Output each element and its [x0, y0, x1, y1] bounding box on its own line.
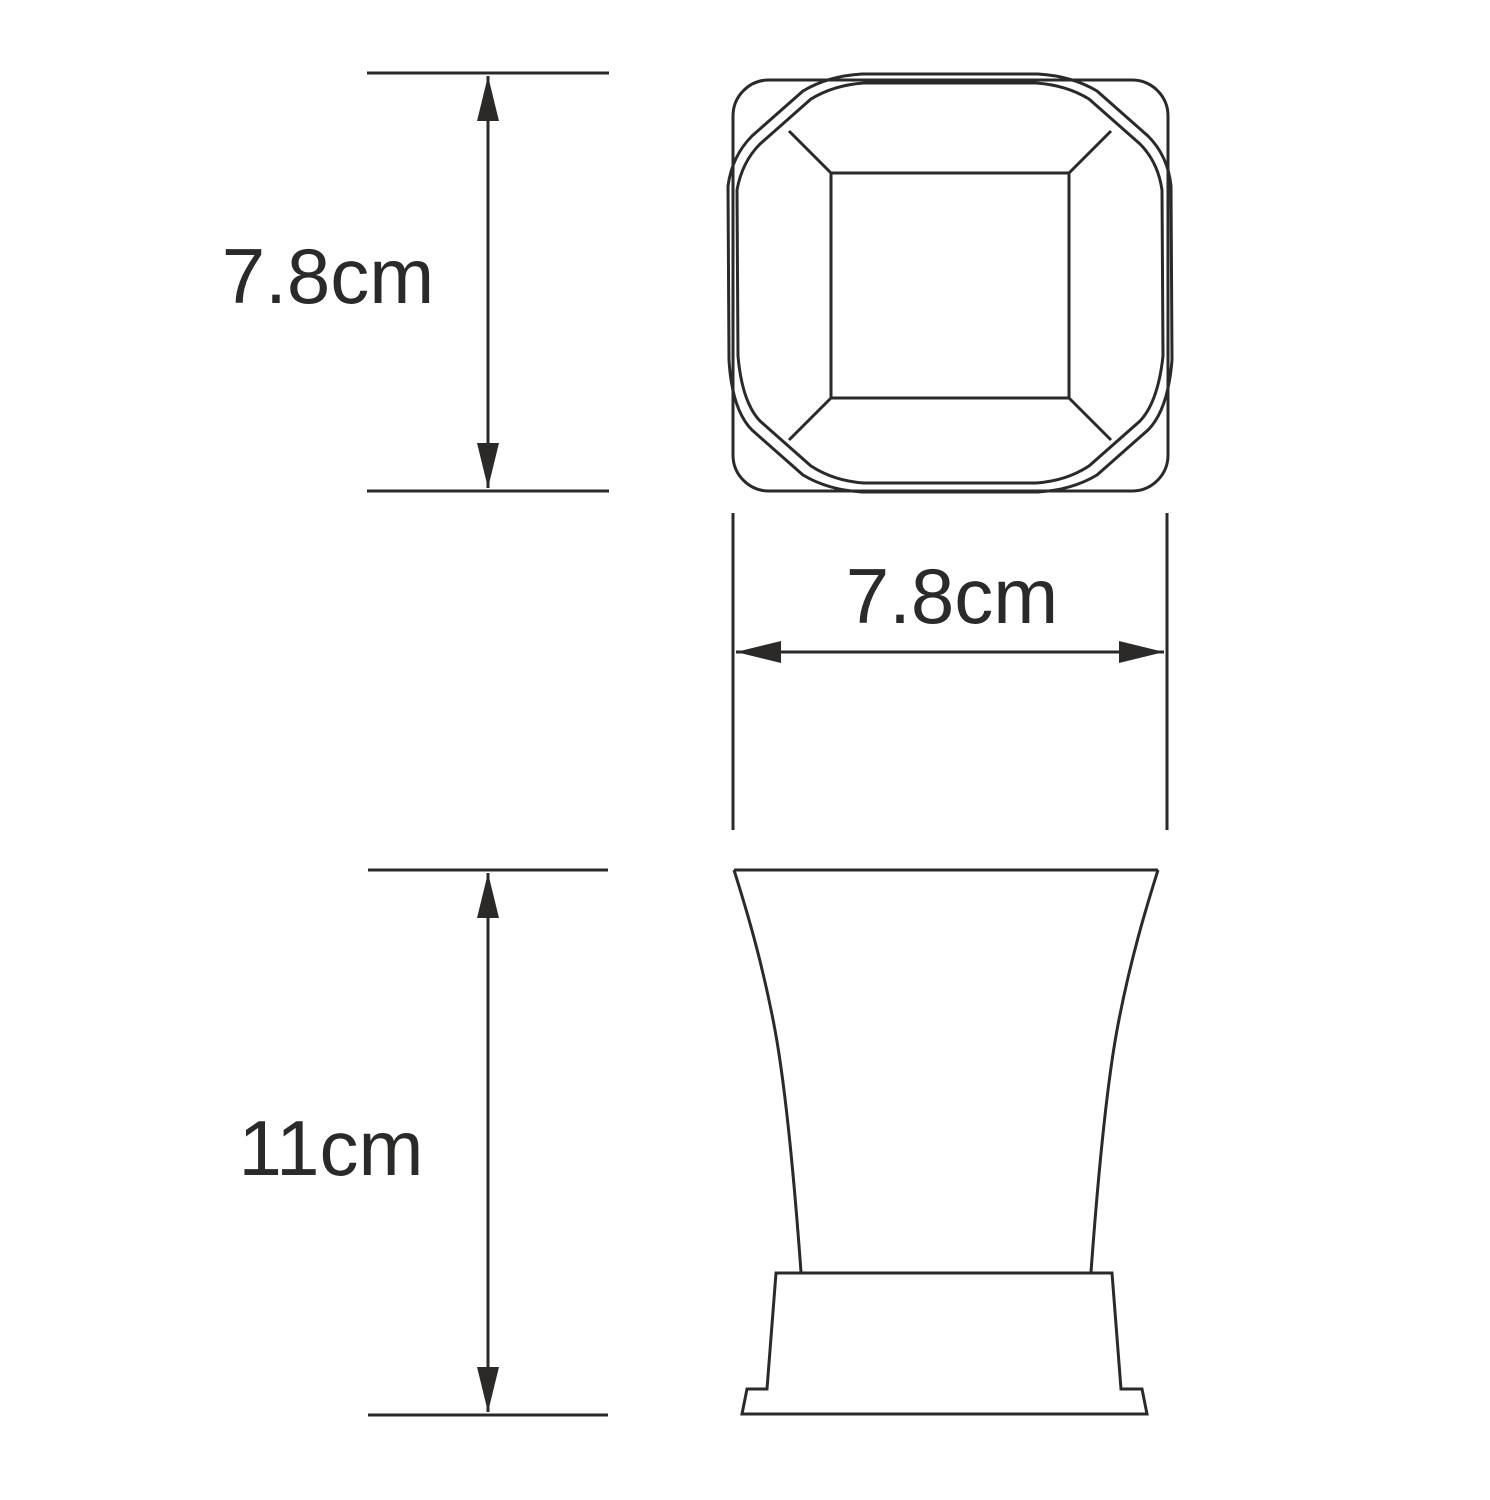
top-view	[728, 74, 1172, 492]
front-view	[734, 870, 1158, 1414]
arrow-down-icon	[477, 1367, 499, 1412]
dimension-label: 11cm	[239, 1104, 424, 1192]
dimension-top-view-height: 7.8cm	[222, 73, 609, 491]
arrow-left-icon	[736, 641, 781, 663]
arrow-up-icon	[477, 76, 499, 121]
arrow-up-icon	[477, 873, 499, 918]
front-view-left-side	[734, 870, 801, 1272]
top-view-facet-line-tr	[1069, 131, 1111, 173]
dimension-label: 7.8cm	[222, 232, 434, 320]
dimension-front-view-height: 11cm	[239, 870, 608, 1415]
arrow-down-icon	[477, 443, 499, 488]
top-view-inner-square	[831, 173, 1069, 398]
top-view-facet-line-tl	[789, 131, 831, 173]
dimension-label: 7.8cm	[846, 552, 1058, 640]
top-view-facet-line-br	[1069, 398, 1111, 440]
top-view-facet-line-bl	[789, 398, 831, 440]
arrow-right-icon	[1119, 641, 1164, 663]
front-view-base	[742, 1273, 1147, 1414]
technical-drawing-canvas: 7.8cm 7.8cm 11cm	[0, 0, 1490, 1500]
dimension-top-view-width: 7.8cm	[733, 513, 1167, 830]
technical-drawing-page: 7.8cm 7.8cm 11cm	[0, 0, 1490, 1500]
front-view-right-side	[1091, 870, 1158, 1272]
